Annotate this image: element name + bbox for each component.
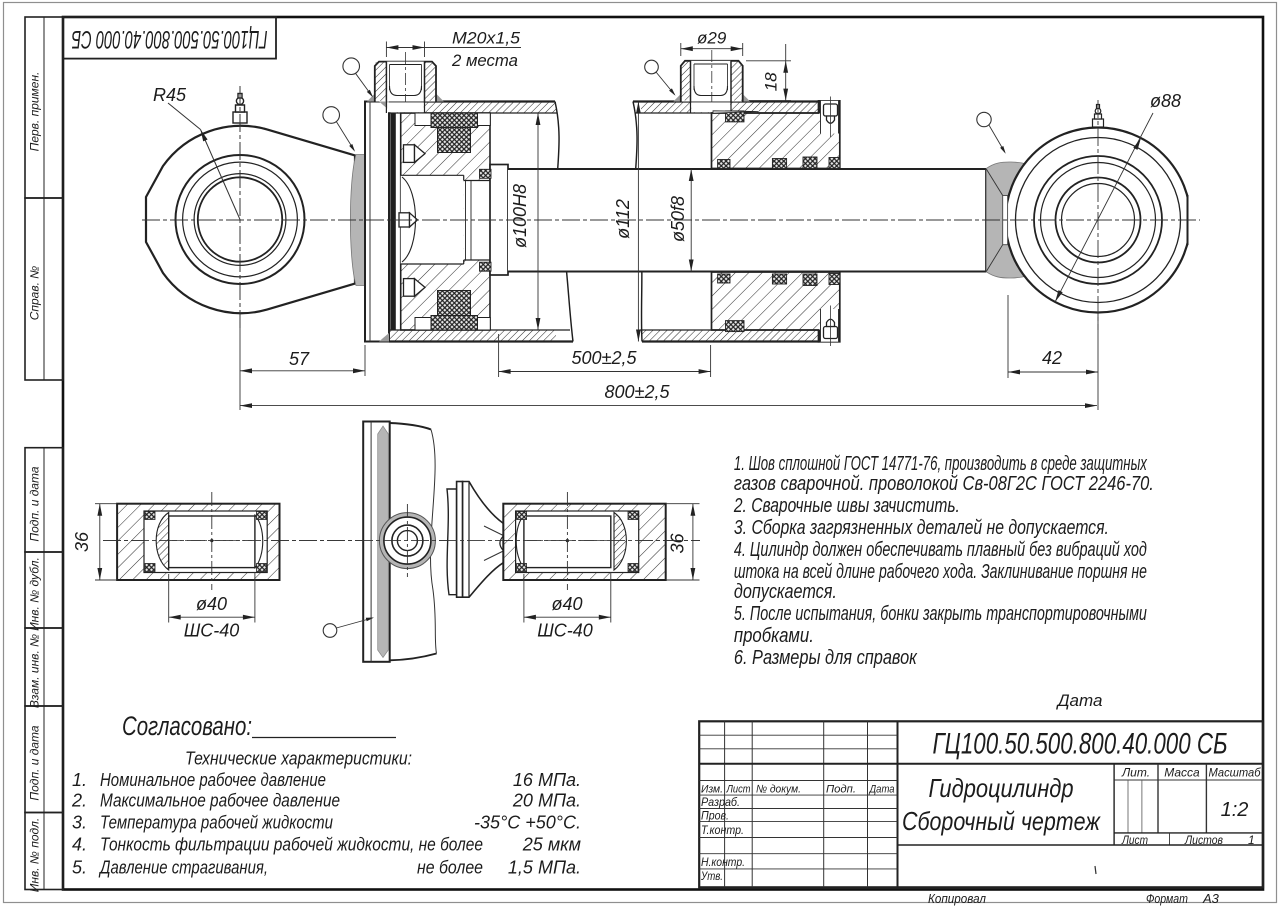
svg-text:Инв. № подл.: Инв. № подл. xyxy=(28,818,42,892)
svg-text:Лист: Лист xyxy=(726,784,751,796)
svg-text:Подп.: Подп. xyxy=(826,784,856,796)
svg-text:1. Шов сплошной ГОСТ 14771-76: 1. Шов сплошной ГОСТ 14771-76, производи… xyxy=(734,453,1148,475)
svg-text:25 мкм: 25 мкм xyxy=(522,835,581,855)
svg-text:Давление страгивания,: Давление страгивания, xyxy=(98,858,268,878)
svg-text:3.: 3. xyxy=(72,813,87,833)
svg-text:газов сварочной. проволокой Св: газов сварочной. проволокой Св-08Г2С ГОС… xyxy=(734,473,1154,495)
svg-text:Лист: Лист xyxy=(1121,833,1148,847)
svg-text:1.: 1. xyxy=(72,770,87,790)
svg-text:5.: 5. xyxy=(72,858,87,878)
svg-text:1:2: 1:2 xyxy=(1221,799,1249,821)
svg-text:Справ. №: Справ. № xyxy=(28,266,42,321)
svg-text:Листов: Листов xyxy=(1184,833,1223,847)
svg-text:Лит.: Лит. xyxy=(1121,766,1150,780)
svg-text:500±2,5: 500±2,5 xyxy=(572,348,638,368)
svg-text:Утв.: Утв. xyxy=(700,869,723,883)
svg-text:штока на всей длине рабочего х: штока на всей длине рабочего хода. Закли… xyxy=(734,561,1147,583)
svg-text:А3: А3 xyxy=(1202,891,1220,906)
svg-text:Подп. и дата: Подп. и дата xyxy=(28,466,42,541)
svg-text:18: 18 xyxy=(762,72,781,91)
svg-text:Дата: Дата xyxy=(868,784,895,796)
svg-text:ГЦ100.50.500.800.40.000 СБ: ГЦ100.50.500.800.40.000 СБ xyxy=(933,728,1228,761)
svg-text:Н.контр.: Н.контр. xyxy=(701,855,745,869)
svg-text:57: 57 xyxy=(289,349,310,369)
svg-text:Взам. инв. №: Взам. инв. № xyxy=(28,634,42,708)
svg-text:5. После испытания, бонки закр: 5. После испытания, бонки закрыть трансп… xyxy=(734,603,1147,625)
svg-text:Технические характеристики:: Технические характеристики: xyxy=(185,749,412,769)
svg-text:1,5 МПа.: 1,5 МПа. xyxy=(508,858,581,878)
svg-text:ø40: ø40 xyxy=(551,594,582,614)
svg-text:4.: 4. xyxy=(72,835,87,855)
svg-text:36: 36 xyxy=(668,533,688,554)
svg-text:42: 42 xyxy=(1042,348,1062,368)
svg-text:Температура рабочей жидкости: Температура рабочей жидкости xyxy=(100,813,333,833)
svg-text:Инв. № дубл.: Инв. № дубл. xyxy=(28,557,42,631)
svg-text:Масштаб: Масштаб xyxy=(1209,766,1262,780)
svg-text:Подп. и дата: Подп. и дата xyxy=(28,725,42,800)
svg-text:ø29: ø29 xyxy=(697,29,727,48)
svg-text:Тонкость фильтрации рабочей жи: Тонкость фильтрации рабочей жидкости, не… xyxy=(100,835,483,855)
svg-text:М20х1,5: М20х1,5 xyxy=(452,29,521,48)
svg-text:Максимальное рабочее давление: Максимальное рабочее давление xyxy=(100,791,340,811)
svg-text:Пров.: Пров. xyxy=(701,809,729,823)
svg-text:6. Размеры для справок: 6. Размеры для справок xyxy=(734,647,918,669)
svg-text:ø100Н8: ø100Н8 xyxy=(510,184,530,248)
svg-text:36: 36 xyxy=(72,531,92,552)
svg-text:4. Цилиндр должен обеспечивать: 4. Цилиндр должен обеспечивать плавный б… xyxy=(734,539,1147,561)
svg-text:3. Сборка загрязненных деталей: 3. Сборка загрязненных деталей не допуск… xyxy=(734,517,1109,539)
svg-text:Формат: Формат xyxy=(1146,891,1188,906)
svg-text:ø50f8: ø50f8 xyxy=(668,196,688,242)
svg-text:ШС-40: ШС-40 xyxy=(537,621,593,641)
svg-text:-35°С +50°С.: -35°С +50°С. xyxy=(474,813,581,833)
svg-text:Т.контр.: Т.контр. xyxy=(701,823,744,837)
svg-text:20 МПа.: 20 МПа. xyxy=(512,791,581,811)
svg-text:№ докум.: № докум. xyxy=(756,784,801,796)
svg-text:2.: 2. xyxy=(71,791,87,811)
svg-text:Масса: Масса xyxy=(1164,766,1200,780)
svg-text:ø40: ø40 xyxy=(196,594,227,614)
svg-text:пробками.: пробками. xyxy=(734,625,814,647)
svg-text:2 места: 2 места xyxy=(451,51,518,70)
svg-text:Разраб.: Разраб. xyxy=(701,795,740,809)
svg-text:ГЦ100.50.500.800.40.000 СБ: ГЦ100.50.500.800.40.000 СБ xyxy=(72,25,268,53)
svg-text:Изм.: Изм. xyxy=(701,784,723,796)
svg-text:Сборочный чертеж: Сборочный чертеж xyxy=(902,806,1101,836)
svg-text:ШС-40: ШС-40 xyxy=(184,621,240,641)
svg-text:R45: R45 xyxy=(153,85,187,105)
svg-text:16 МПа.: 16 МПа. xyxy=(513,770,581,790)
svg-text:Согласовано:: Согласовано: xyxy=(122,711,252,741)
svg-text:ø88: ø88 xyxy=(1150,91,1181,111)
svg-text:1: 1 xyxy=(1248,833,1255,847)
svg-text:2. Сварочные швы зачистить.: 2. Сварочные швы зачистить. xyxy=(733,495,960,517)
svg-text:800±2,5: 800±2,5 xyxy=(605,382,671,402)
svg-text:Гидроцилиндр: Гидроцилиндр xyxy=(929,773,1074,803)
svg-text:Копировал: Копировал xyxy=(928,891,987,906)
svg-text:допускается.: допускается. xyxy=(734,581,837,603)
svg-text:не более: не более xyxy=(417,858,483,878)
svg-text:Перв. примен.: Перв. примен. xyxy=(28,72,42,152)
svg-text:ø112: ø112 xyxy=(613,199,633,239)
svg-text:Номинальное рабочее давление: Номинальное рабочее давление xyxy=(100,770,326,790)
svg-text:Дата: Дата xyxy=(1056,691,1103,710)
